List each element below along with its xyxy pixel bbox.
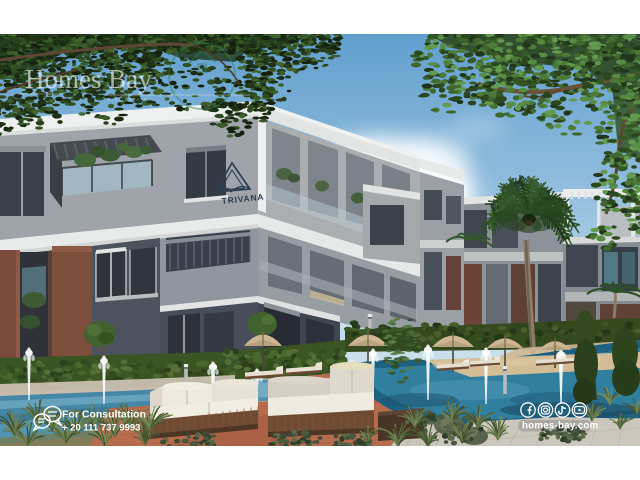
svg-text:+ 20 111 737 9993: + 20 111 737 9993 — [62, 423, 140, 434]
svg-text:REAL ESTATE: REAL ESTATE — [107, 97, 148, 102]
svg-text:Homes Bay: Homes Bay — [25, 64, 152, 94]
svg-text:homes-bay.com: homes-bay.com — [522, 421, 599, 432]
svg-text:For Consultation: For Consultation — [62, 409, 146, 421]
